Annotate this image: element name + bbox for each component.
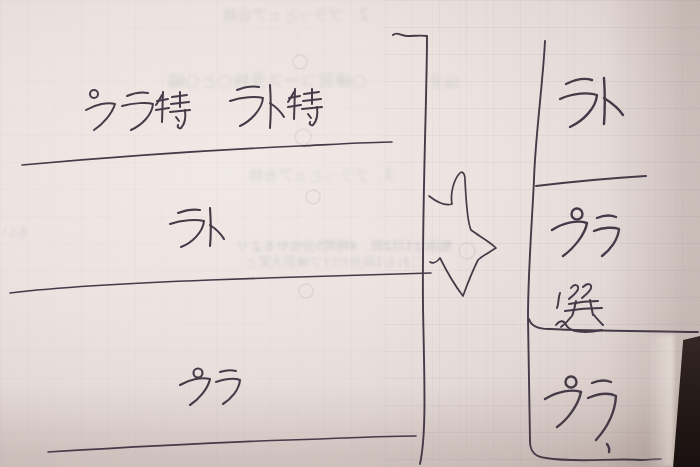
show-through-circle-marks (293, 55, 475, 298)
glyph-ra (170, 210, 204, 247)
photo-of-handwritten-note: 2、プラっとェア合格 ○練習コース受験○と○編 編要 3、プラっとェア合格 勉強… (0, 0, 700, 467)
handwriting-left-row-1 (86, 85, 322, 130)
handwriting-right-cell-1 (560, 78, 623, 127)
glyph-pu (180, 369, 210, 406)
glyph-ra (588, 381, 616, 440)
glyph-pu (86, 90, 115, 130)
underline-2 (10, 273, 431, 293)
glyph-toku (156, 92, 190, 128)
block-arrow-drawing (429, 172, 496, 296)
glyph-pu (552, 209, 587, 257)
handwriting-left-row-3 (180, 369, 240, 406)
right-table-divider-1 (536, 176, 646, 186)
left-section-underlines (10, 142, 431, 452)
handwriting-right-cell-2 (552, 209, 619, 333)
comma-mark (607, 444, 609, 452)
handwriting-right-cell-3 (545, 377, 616, 453)
glyph-ra (216, 370, 240, 404)
glyph-ra (594, 216, 619, 256)
right-table-divider-2 (529, 319, 698, 332)
underline-3 (48, 436, 416, 452)
glyph-to (270, 85, 284, 128)
glyph-ra (230, 87, 263, 126)
paper-edge-highlight (646, 335, 674, 467)
glyph-ra (560, 79, 597, 127)
handwriting-left-row-2 (170, 208, 224, 247)
underline-1 (22, 142, 392, 165)
glyph-toku (288, 89, 322, 125)
glyph-to (604, 78, 623, 124)
glyph-sen (556, 284, 603, 332)
left-block-bracket (393, 33, 427, 464)
glyph-to (210, 208, 224, 246)
glyph-ra (122, 93, 153, 130)
glyph-pu (545, 377, 581, 428)
handwriting-ink-layer (0, 0, 700, 467)
